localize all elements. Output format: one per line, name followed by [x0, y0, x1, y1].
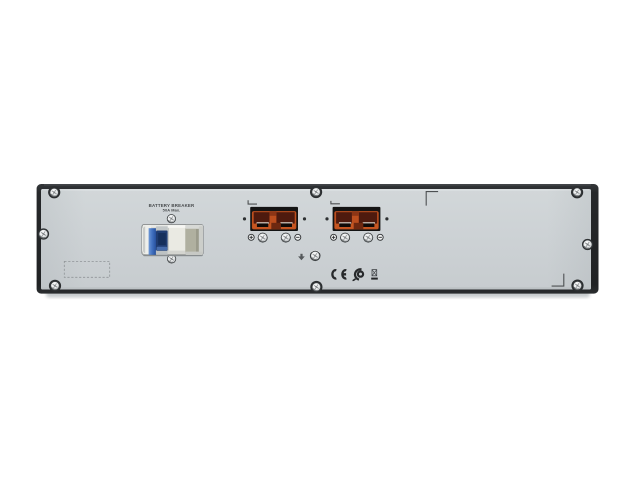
svg-text:50A Max.: 50A Max. — [163, 207, 181, 212]
